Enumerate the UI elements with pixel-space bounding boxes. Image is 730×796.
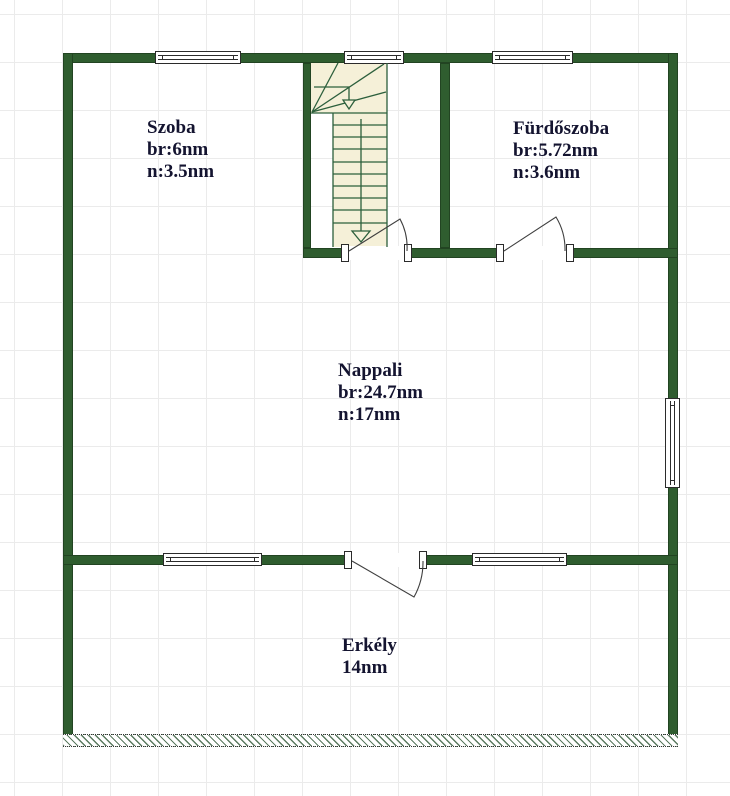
window-glazing-line (670, 401, 671, 485)
room-label-szoba: Szoba br:6nm n:3.5nm (147, 117, 214, 183)
door-opening-balcony (352, 553, 419, 567)
room-name: Erkély (342, 635, 397, 657)
window-glazing-line (158, 59, 238, 60)
window-end-tick (565, 55, 566, 60)
stair-winder-area (311, 63, 387, 113)
door-opening-bathroom (504, 246, 566, 260)
window-szoba (155, 51, 241, 64)
window-end-tick (254, 557, 255, 562)
window-end-tick (670, 480, 675, 481)
floorplan-canvas: Szoba br:6nm n:3.5nm Fürdőszoba br:5.72n… (0, 0, 730, 796)
window-end-tick (170, 557, 171, 562)
window-end-tick (233, 55, 234, 60)
window-glazing-line (674, 401, 675, 485)
window-nappali-right (665, 398, 680, 488)
room-gross-area: br:5.72nm (513, 140, 609, 162)
window-end-tick (396, 55, 397, 60)
room-gross-area: br:24.7nm (338, 382, 423, 404)
window-glazing-line (166, 557, 259, 558)
door-jamb (566, 244, 574, 262)
window-glazing-line (475, 557, 564, 558)
window-glazing-line (495, 59, 570, 60)
window-end-tick (670, 405, 675, 406)
wall-left (63, 53, 73, 735)
window-balcony-left (163, 553, 262, 566)
room-label-furdoszoba: Fürdőszoba br:5.72nm n:3.6nm (513, 118, 609, 184)
window-balcony-right (472, 553, 567, 566)
window-glazing-line (495, 55, 570, 56)
room-name: Nappali (338, 360, 423, 382)
window-end-tick (559, 557, 560, 562)
room-name: Fürdőszoba (513, 118, 609, 140)
room-gross-area: br:6nm (147, 139, 214, 161)
window-glazing-line (347, 55, 401, 56)
door-jamb (344, 551, 352, 569)
window-glazing-line (166, 561, 259, 562)
window-glazing-line (347, 59, 401, 60)
room-net-area: n:17nm (338, 404, 423, 426)
wall-stair-left (303, 63, 311, 248)
room-label-nappali: Nappali br:24.7nm n:17nm (338, 360, 423, 426)
balcony-edge-hatch (63, 734, 678, 747)
room-label-erkely: Erkély 14nm (342, 635, 397, 679)
window-end-tick (351, 55, 352, 60)
door-jamb (341, 244, 349, 262)
door-jamb (496, 244, 504, 262)
window-glazing-line (475, 561, 564, 562)
room-net-area: n:3.6nm (513, 162, 609, 184)
window-end-tick (162, 55, 163, 60)
window-bathroom (492, 51, 573, 64)
wall-stair-bathroom-divider (440, 63, 450, 248)
window-end-tick (499, 55, 500, 60)
window-glazing-line (158, 55, 238, 56)
room-area: 14nm (342, 657, 397, 679)
door-jamb (419, 551, 427, 569)
door-jamb (404, 244, 412, 262)
window-staircase (344, 51, 404, 64)
room-net-area: n:3.5nm (147, 161, 214, 183)
room-name: Szoba (147, 117, 214, 139)
door-opening-staircase (349, 246, 404, 260)
stair-flight-area (333, 113, 387, 247)
window-end-tick (479, 557, 480, 562)
